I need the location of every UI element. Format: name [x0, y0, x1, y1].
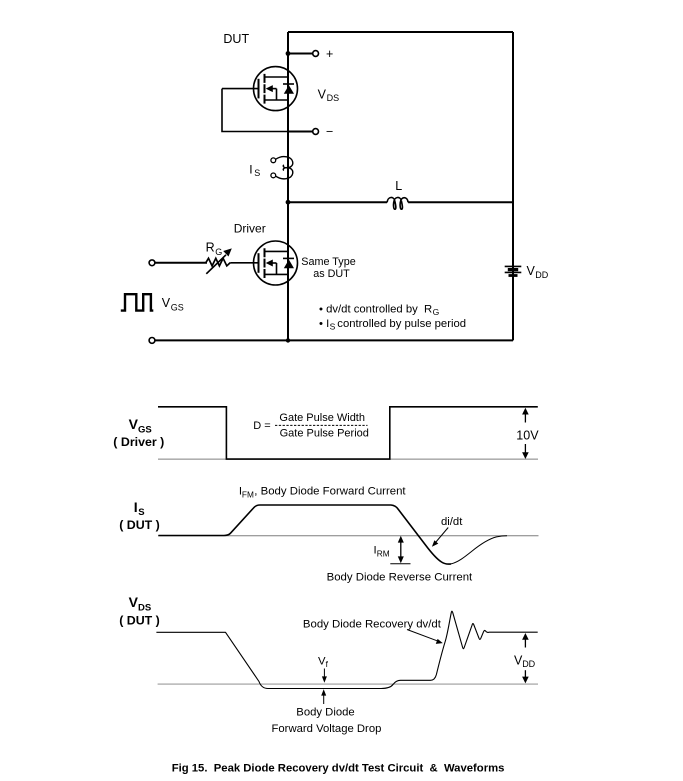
svg-text:S: S — [330, 322, 336, 332]
svg-text:DUT: DUT — [223, 32, 249, 46]
svg-text:controlled by pulse period: controlled by pulse period — [337, 318, 466, 330]
svg-text:DD: DD — [535, 270, 548, 280]
svg-text:Same Type: Same Type — [301, 256, 355, 268]
svg-text:D =: D = — [253, 420, 270, 432]
svg-text:V: V — [162, 296, 171, 310]
svg-text:FM: FM — [242, 490, 254, 500]
svg-text:10V: 10V — [516, 428, 539, 442]
svg-text:I: I — [134, 499, 138, 515]
svg-text:( DUT ): ( DUT ) — [119, 518, 160, 532]
svg-text:Fig 15. Peak Diode Recovery d: Fig 15. Peak Diode Recovery dv/dt Test C… — [172, 762, 505, 774]
svg-text:Body Diode Recovery dv/dt: Body Diode Recovery dv/dt — [303, 618, 442, 630]
svg-text:+: + — [326, 47, 333, 61]
svg-text:DS: DS — [138, 602, 151, 613]
svg-text:GS: GS — [138, 424, 152, 435]
svg-text:Forward Voltage Drop: Forward Voltage Drop — [272, 723, 382, 735]
svg-text:DD: DD — [522, 659, 535, 669]
svg-text:R: R — [206, 241, 215, 255]
svg-text:DS: DS — [327, 93, 340, 103]
svg-text:( Driver ): ( Driver ) — [113, 435, 164, 449]
svg-text:G: G — [215, 247, 222, 257]
svg-text:I: I — [249, 162, 252, 176]
svg-text:S: S — [254, 168, 260, 178]
svg-text:S: S — [138, 507, 144, 518]
svg-text:GS: GS — [171, 302, 184, 312]
svg-text:• I: • I — [319, 318, 329, 330]
svg-text:Body Diode: Body Diode — [296, 707, 354, 719]
svg-text:G: G — [433, 307, 440, 317]
svg-text:V: V — [527, 264, 536, 278]
svg-text:RM: RM — [377, 548, 390, 558]
svg-text:as DUT: as DUT — [313, 268, 350, 280]
svg-text:di/dt: di/dt — [441, 516, 463, 528]
svg-text:, Body Diode Forward Current: , Body Diode Forward Current — [254, 486, 406, 498]
svg-text:Gate Pulse Width: Gate Pulse Width — [279, 412, 365, 424]
svg-text:Body Diode Reverse Current: Body Diode Reverse Current — [327, 571, 473, 583]
svg-text:L: L — [395, 179, 402, 193]
svg-text:Gate Pulse Period: Gate Pulse Period — [280, 428, 369, 440]
svg-text:• dv/dt controlled by R: • dv/dt controlled by R — [319, 304, 432, 316]
svg-text:V: V — [318, 87, 327, 101]
svg-text:Driver: Driver — [234, 222, 266, 236]
svg-text:( DUT ): ( DUT ) — [119, 613, 160, 627]
svg-text:f: f — [326, 659, 329, 669]
svg-text:−: − — [326, 125, 333, 139]
